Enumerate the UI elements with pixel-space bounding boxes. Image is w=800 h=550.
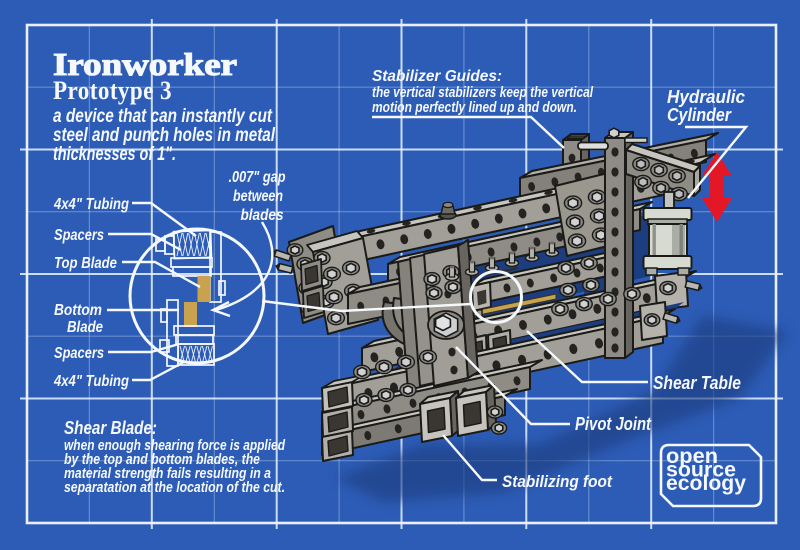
svg-text:blades: blades [241,207,284,224]
svg-text:Stabilizing foot: Stabilizing foot [502,472,613,491]
svg-text:Top Blade: Top Blade [54,255,117,272]
svg-text:ecology: ecology [666,472,746,495]
svg-text:.007" gap: .007" gap [229,169,286,186]
svg-text:steel and punch holes in metal: steel and punch holes in metal [53,125,276,146]
svg-text:Pivot Joint: Pivot Joint [575,414,652,434]
svg-text:motion perfectly lined up and: motion perfectly lined up and down. [372,99,577,116]
svg-text:separatation at the location o: separatation at the location of the cut. [64,479,285,496]
svg-text:between: between [233,188,283,205]
svg-text:Prototype 3: Prototype 3 [53,76,172,105]
svg-text:Hydraulic: Hydraulic [667,87,745,107]
svg-text:Spacers: Spacers [54,227,104,244]
svg-text:Blade: Blade [67,319,103,336]
svg-text:Shear Table: Shear Table [653,373,741,393]
svg-text:Cylinder: Cylinder [667,105,732,125]
svg-text:Spacers: Spacers [54,345,104,362]
svg-text:4x4" Tubing: 4x4" Tubing [53,196,129,213]
svg-text:4x4" Tubing: 4x4" Tubing [53,373,129,390]
svg-text:thicknesses of 1".: thicknesses of 1". [53,144,176,165]
svg-text:a device that can instantly cu: a device that can instantly cut [53,106,273,127]
svg-text:Shear Blade:: Shear Blade: [64,418,157,438]
svg-text:Stabilizer Guides:: Stabilizer Guides: [372,68,502,85]
svg-text:Bottom: Bottom [54,302,102,319]
